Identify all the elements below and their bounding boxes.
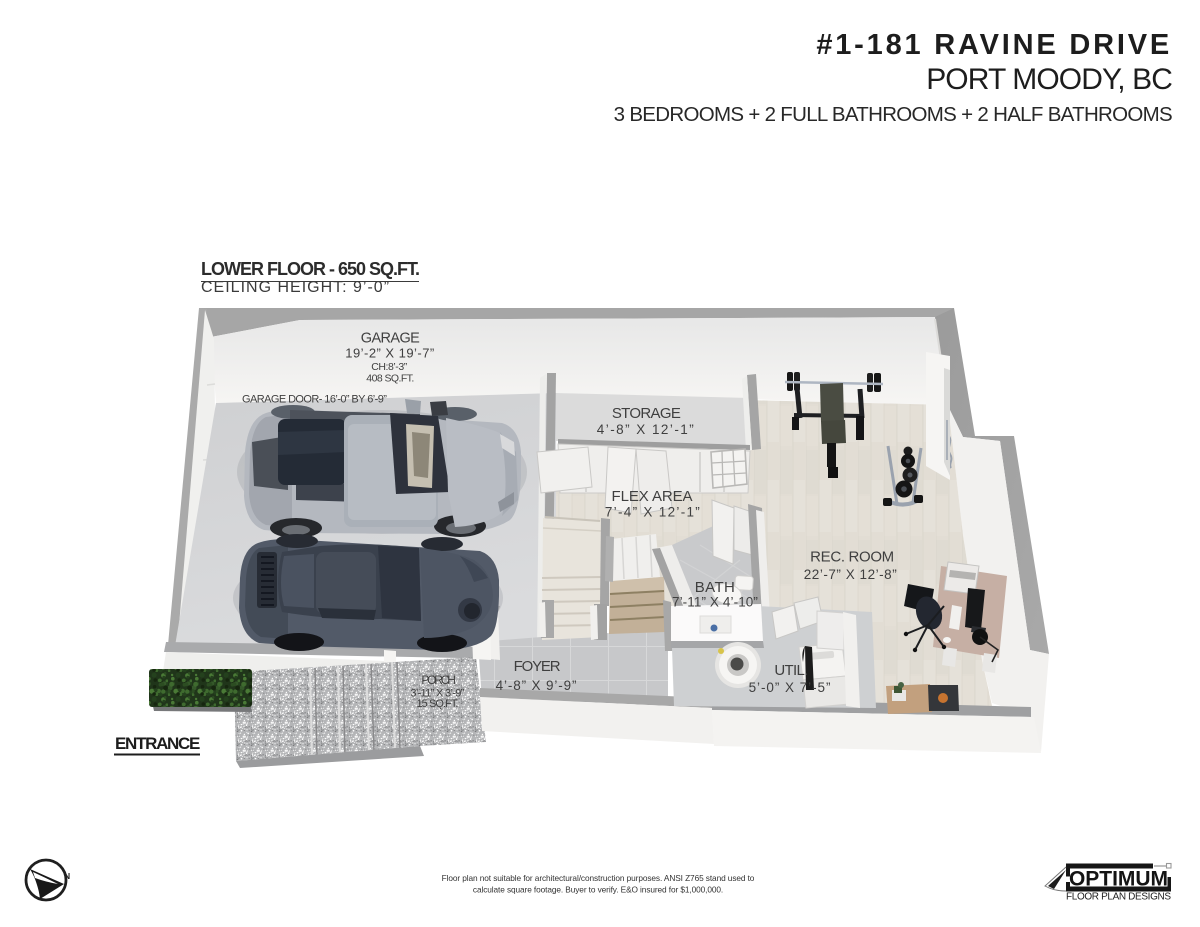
svg-text:5’-0” X 7’-5”: 5’-0” X 7’-5”	[749, 680, 832, 695]
svg-text:UTIL.: UTIL.	[774, 662, 807, 679]
svg-text:22’-7” X 12’-8”: 22’-7” X 12’-8”	[804, 567, 898, 582]
svg-text:4’-8” X 9’-9”: 4’-8” X 9’-9”	[496, 678, 578, 693]
svg-text:GARAGE DOOR- 16’-0” BY 6’-9”: GARAGE DOOR- 16’-0” BY 6’-9”	[242, 394, 387, 406]
svg-text:7’-4” X 12’-1”: 7’-4” X 12’-1”	[605, 505, 701, 520]
svg-text:N: N	[64, 871, 70, 881]
svg-text:4’-8” X 12’-1”: 4’-8” X 12’-1”	[597, 422, 695, 437]
svg-text:ENTRANCE: ENTRANCE	[115, 734, 200, 753]
svg-text:STORAGE: STORAGE	[612, 405, 681, 422]
svg-text:15 SQ.FT.: 15 SQ.FT.	[417, 698, 459, 710]
svg-text:7’-11” X 4’-10”: 7’-11” X 4’-10”	[672, 595, 758, 610]
svg-text:FLOOR PLAN DESIGNS: FLOOR PLAN DESIGNS	[1066, 892, 1171, 903]
svg-text:OPTIMUM: OPTIMUM	[1069, 868, 1168, 891]
svg-text:CH:8’-3”: CH:8’-3”	[371, 361, 408, 373]
svg-text:FLEX AREA: FLEX AREA	[612, 488, 693, 505]
svg-text:REC. ROOM: REC. ROOM	[810, 549, 894, 566]
svg-text:BATH: BATH	[695, 579, 735, 596]
svg-text:FOYER: FOYER	[514, 658, 561, 675]
svg-text:Floor plan not suitable for ar: Floor plan not suitable for architectura…	[442, 873, 755, 883]
svg-text:PORCH: PORCH	[421, 673, 455, 687]
svg-text:408 SQ.FT.: 408 SQ.FT.	[366, 373, 413, 385]
svg-text:19’-2” X 19’-7”: 19’-2” X 19’-7”	[345, 346, 434, 361]
svg-text:GARAGE: GARAGE	[361, 331, 420, 347]
svg-text:calculate square footage. Buye: calculate square footage. Buyer to verif…	[473, 885, 723, 895]
